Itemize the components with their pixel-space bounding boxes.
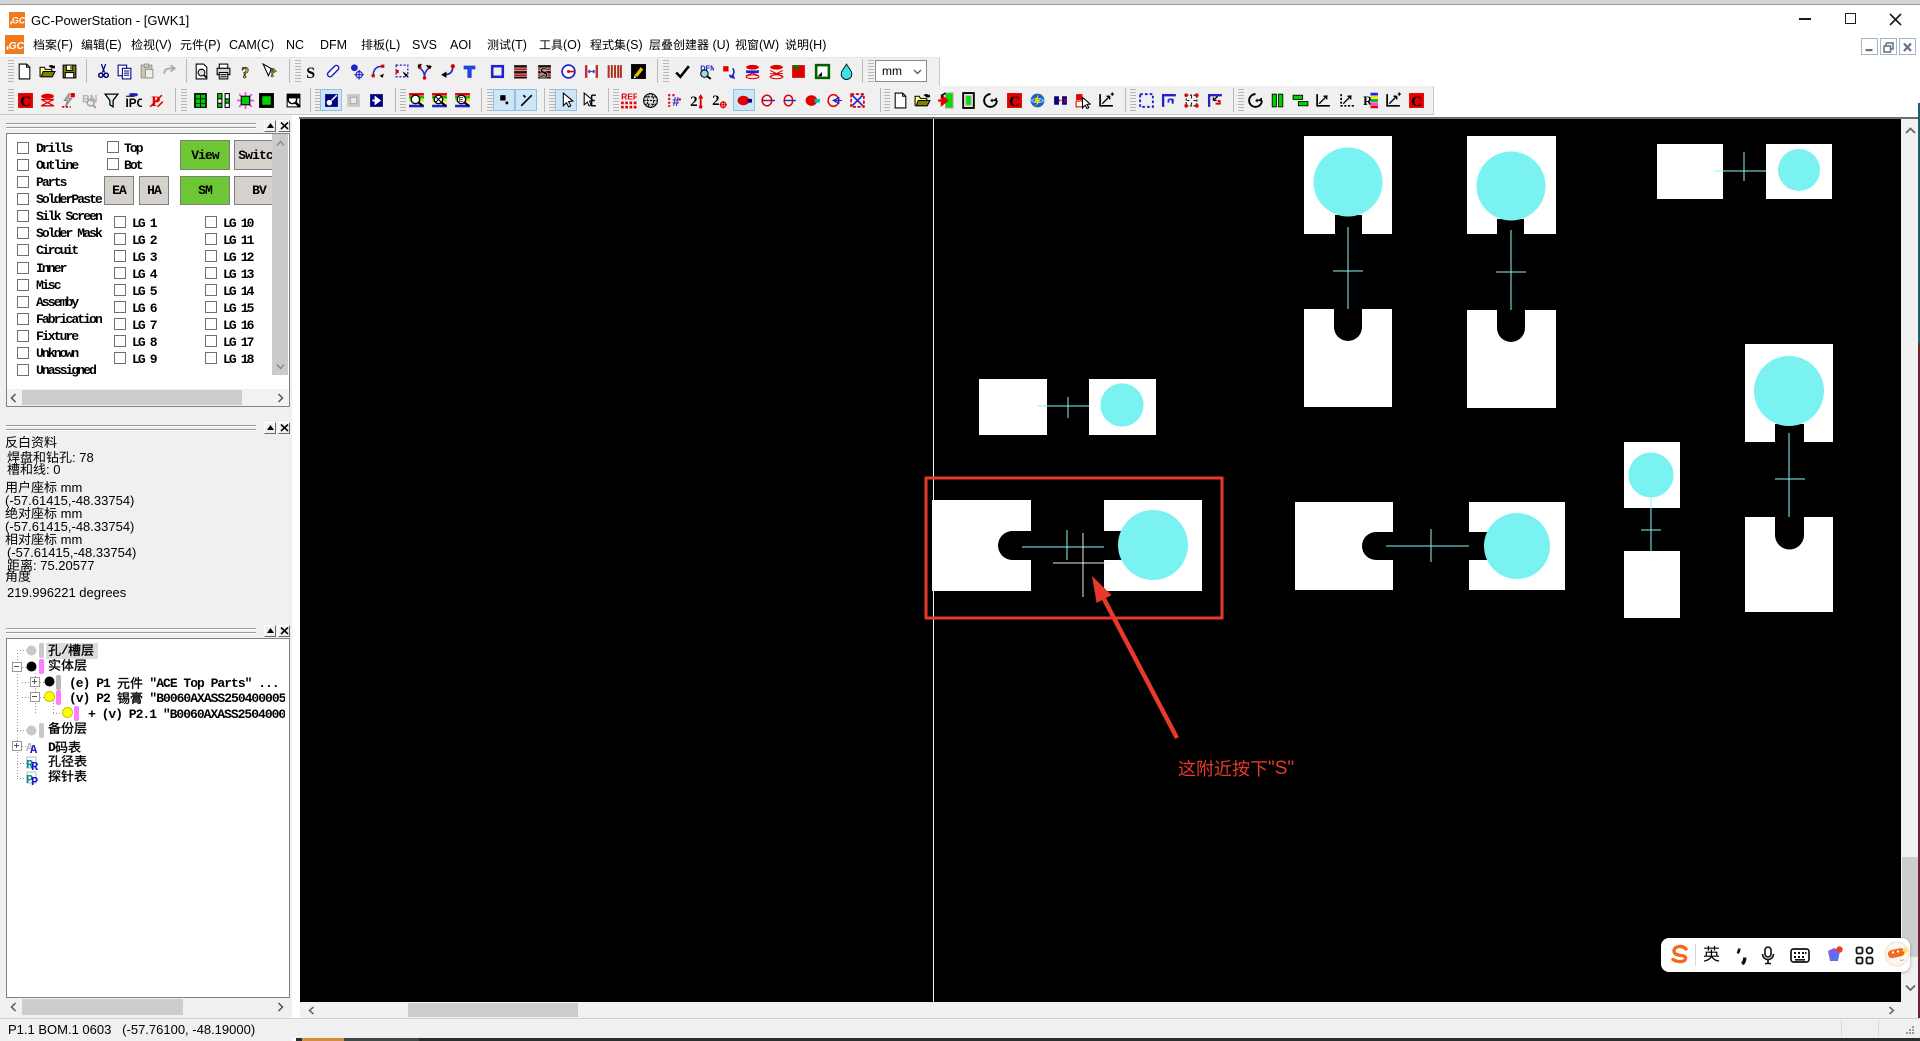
svg-text:GC: GC — [12, 16, 25, 26]
svg-text:R: R — [31, 760, 39, 771]
svg-text:A: A — [30, 743, 38, 754]
svg-text:S: S — [540, 65, 548, 80]
svg-text:E: E — [459, 95, 464, 104]
svg-text:C: C — [1009, 94, 1020, 109]
svg-text:?: ? — [241, 65, 249, 80]
svg-text:2: 2 — [712, 93, 719, 109]
svg-text:C: C — [20, 94, 31, 109]
svg-text:P: P — [31, 775, 38, 786]
svg-text:C: C — [1411, 94, 1422, 109]
svg-text:S: S — [306, 65, 315, 80]
svg-text:2: 2 — [690, 94, 697, 109]
svg-text:REF: REF — [621, 92, 637, 101]
svg-text:IPC: IPC — [126, 97, 142, 109]
svg-text:GC: GC — [8, 41, 24, 52]
svg-text:?: ? — [270, 66, 276, 80]
